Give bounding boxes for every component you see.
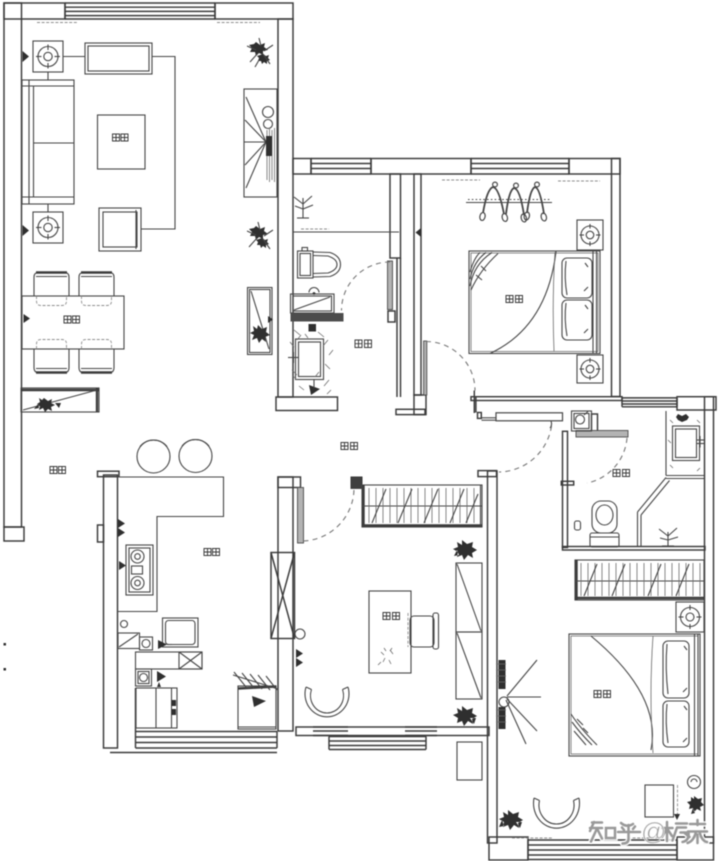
svg-text:@: @ [641, 818, 666, 846]
